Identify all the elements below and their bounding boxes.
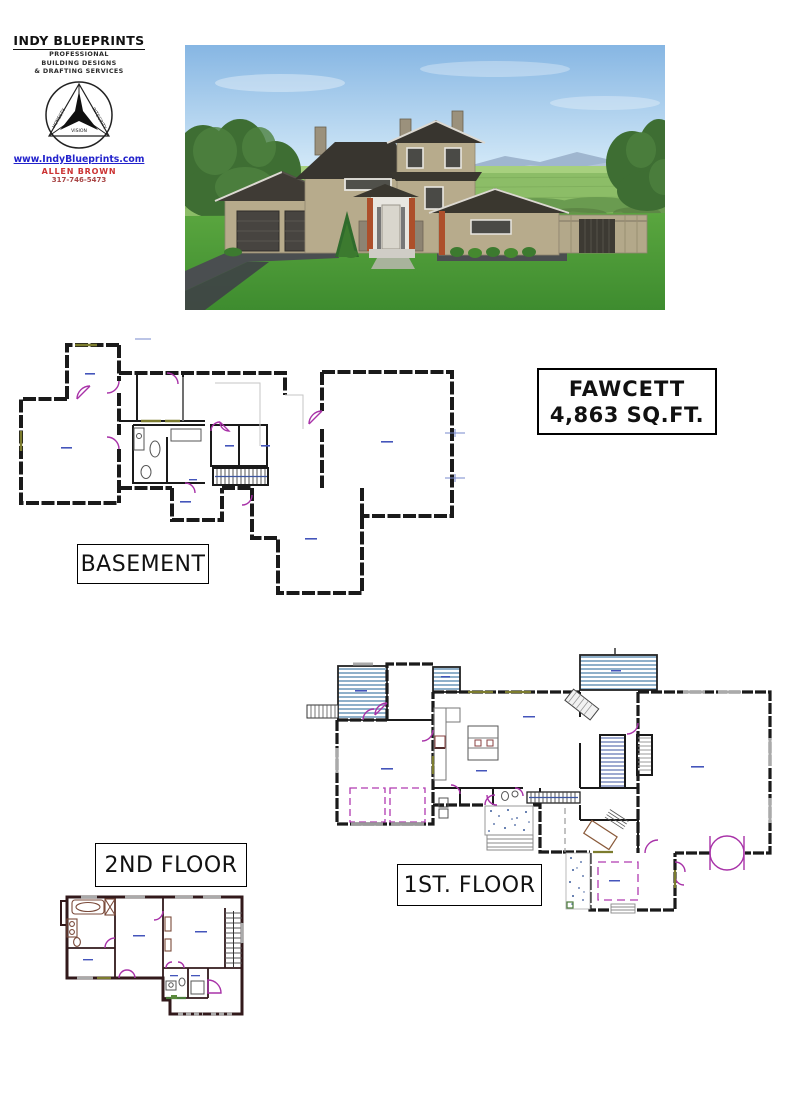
basement-stairs: [215, 469, 267, 484]
chimney: [315, 127, 326, 155]
bath-fixtures: [67, 899, 171, 951]
dimension-ticks: [135, 339, 465, 482]
exterior-steps: [307, 705, 338, 718]
stairs: [225, 911, 242, 967]
garage-bays: [350, 788, 425, 822]
tagline: PROFESSIONAL: [12, 50, 146, 59]
window: [445, 148, 461, 168]
accent-post: [409, 198, 415, 251]
room-label-marks: [61, 373, 393, 540]
accent-post: [439, 211, 445, 255]
hall-bath-fixtures: [166, 978, 204, 994]
basement-label-text: BASEMENT: [81, 552, 206, 577]
screened-porch: [598, 862, 638, 913]
front-door: [382, 205, 400, 249]
first-floor-label: 1ST. FLOOR: [397, 864, 542, 906]
company-logo: INDY BLUEPRINTS PROFESSIONAL BUILDING DE…: [12, 30, 146, 184]
corner-fireplace: [565, 689, 599, 720]
designer-name: ALLEN BROWN: [12, 167, 146, 176]
window: [407, 148, 423, 168]
phone-number: 317-746-5473: [12, 176, 146, 184]
second-floor-label-text: 2ND FLOOR: [105, 853, 238, 878]
window: [471, 220, 511, 234]
company-website: www.IndyBlueprints.com: [12, 154, 146, 165]
tagline: & DRAFTING SERVICES: [12, 67, 146, 76]
front-steps: [369, 249, 415, 258]
first-floor-plan: [293, 648, 798, 1013]
triangle-emblem-icon: HONESTY INTEGRITY VISION: [39, 77, 119, 153]
study-desk: [565, 808, 628, 852]
plan-name: FAWCETT: [569, 376, 685, 402]
emblem-word: VISION: [71, 128, 87, 134]
front-stoop: [485, 806, 533, 850]
french-doors: [710, 836, 744, 870]
windows: [77, 897, 242, 1014]
window: [425, 187, 443, 209]
fence: [559, 215, 647, 253]
plan-area: 4,863 SQ.FT.: [550, 402, 704, 428]
second-floor-plan: [53, 883, 268, 1028]
kitchen: [434, 708, 498, 780]
title-block: FAWCETT 4,863 SQ.FT.: [537, 368, 717, 435]
door-swings: [77, 373, 322, 505]
side-patio: [566, 853, 590, 909]
accent-post: [367, 198, 373, 251]
tagline: BUILDING DESIGNS: [12, 59, 146, 68]
house-rendering: [185, 45, 665, 310]
blueprint-sheet: INDY BLUEPRINTS PROFESSIONAL BUILDING DE…: [0, 0, 800, 1100]
company-name: INDY BLUEPRINTS: [13, 33, 144, 50]
first-floor-label-text: 1ST. FLOOR: [404, 873, 536, 898]
interior-walls: [67, 897, 242, 1000]
second-floor-label: 2ND FLOOR: [95, 843, 247, 887]
basement-label: BASEMENT: [77, 544, 209, 584]
basement-stairwell: [527, 792, 580, 803]
